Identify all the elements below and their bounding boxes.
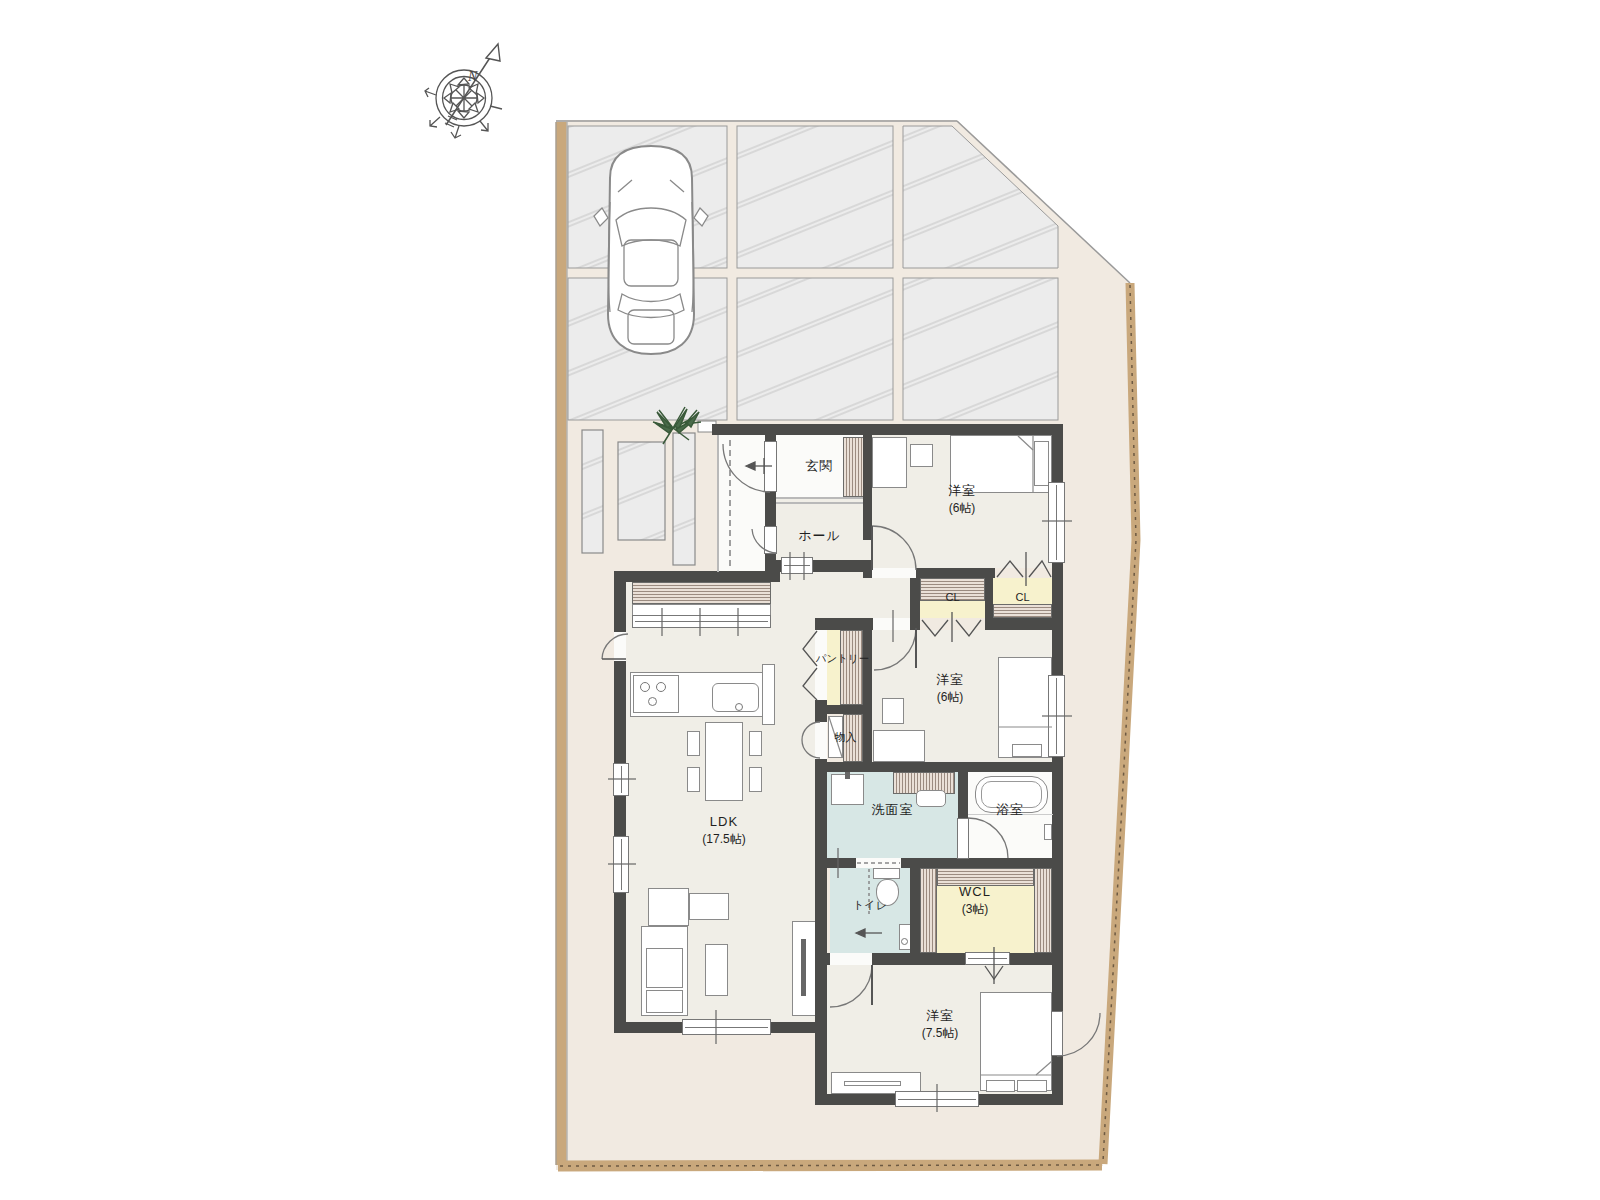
desk-bedroom1 — [872, 437, 907, 488]
ldk-size: (17.5帖) — [702, 832, 745, 846]
bedroom2-name: 洋室 — [936, 672, 964, 687]
bedroom2-window — [1048, 675, 1065, 757]
bedroom2-size: (6帖) — [937, 690, 964, 704]
room-label-genkan: 玄関 — [776, 458, 863, 475]
boundary-bottom — [558, 1165, 1102, 1166]
porch-step-dashed-line — [729, 440, 731, 566]
shower-mixer — [1044, 824, 1052, 840]
burner-2 — [656, 682, 666, 692]
wall-bath-left — [958, 772, 968, 820]
room-label-hall: ホール — [776, 528, 863, 545]
bedroom1-window — [1048, 482, 1065, 563]
chair-4 — [749, 767, 762, 792]
washing-machine-tap — [845, 772, 850, 779]
compass-icon: N — [425, 44, 502, 138]
ldk-name: LDK — [710, 814, 738, 829]
basin-bowl — [901, 938, 908, 945]
pillow-bedroom3-b — [1017, 1080, 1047, 1092]
closet-right-shelf — [993, 604, 1052, 618]
wall-hall-bottom-b — [813, 560, 863, 572]
approach-path — [582, 430, 695, 565]
bedroom3-south-window — [895, 1091, 979, 1107]
wall-wcl-bottom-a — [815, 953, 830, 965]
genkan-step-line2 — [776, 502, 863, 504]
genkan-step-line1 — [776, 497, 863, 499]
room-label-bedroom1: 洋室(6帖) — [912, 483, 1012, 517]
label-closet-right: CL — [993, 590, 1052, 604]
ldk-west-window2 — [613, 836, 629, 893]
room-label-bedroom2: 洋室(6帖) — [900, 672, 1000, 706]
wcl-door-opening — [965, 952, 1010, 965]
wall-closet-top — [916, 568, 995, 578]
bedroom3-exterior-door-leaf — [1051, 1011, 1063, 1056]
tv-bedroom3 — [844, 1081, 901, 1086]
ldk-south-window — [682, 1019, 771, 1035]
chair-1 — [687, 731, 700, 756]
room-label-bathroom: 浴室 — [976, 802, 1044, 819]
hall-opening-floor — [863, 540, 872, 560]
driveway-slabs — [568, 126, 1058, 420]
wall-closet-bottom — [985, 618, 1052, 630]
dining-table — [705, 722, 743, 801]
wall-ldk-top — [614, 571, 780, 582]
room-label-wcl: WCL(3帖) — [925, 884, 1025, 918]
bedroom3-name: 洋室 — [926, 1008, 954, 1023]
wall-wcl-bottom-b — [872, 953, 965, 965]
wcl-size: (3帖) — [962, 902, 989, 916]
wcl-shelf-right — [1034, 868, 1052, 953]
washroom-door-opening — [856, 858, 901, 868]
cooktop — [633, 675, 679, 713]
wall-washroom-bottom — [815, 858, 1063, 868]
bedroom2-door-opening — [873, 618, 910, 630]
porch-edge-line — [717, 435, 719, 572]
room-label-toilet: トイレ — [830, 898, 910, 912]
bedroom1-size: (6帖) — [949, 501, 976, 515]
wcl-name: WCL — [959, 884, 991, 899]
counter-return — [762, 664, 775, 725]
wall-closet-mid — [985, 578, 993, 618]
faucet — [735, 703, 743, 711]
label-pantry: パントリー — [805, 652, 880, 666]
bath-door-leaf — [957, 818, 969, 859]
wall-washroom-top — [815, 762, 1063, 772]
desk-bedroom2 — [873, 730, 925, 762]
wall-corridor-post — [863, 560, 872, 578]
pillow-bedroom3-a — [986, 1080, 1015, 1092]
wall-bedroom2-top-b — [910, 618, 920, 630]
plant-icon — [653, 407, 701, 444]
bed-bedroom2 — [998, 657, 1052, 758]
boundary-right — [1103, 283, 1136, 1164]
bed-bedroom3 — [980, 992, 1052, 1091]
label-storage: 物入 — [818, 730, 873, 744]
porch-floor — [719, 435, 765, 572]
ldk-closet-sliding-door — [632, 615, 771, 628]
chair-2 — [687, 767, 700, 792]
car-icon — [594, 146, 708, 354]
ldk-closet-shelf — [632, 582, 771, 604]
room-label-bedroom3: 洋室(7.5帖) — [890, 1008, 990, 1042]
pillow-bedroom1 — [1034, 441, 1049, 486]
chair-3 — [749, 731, 762, 756]
bedroom1-name: 洋室 — [948, 483, 976, 498]
side-table — [689, 893, 729, 920]
bed-foot-bedroom2 — [1012, 744, 1042, 757]
ldk-west-door-opening — [614, 632, 626, 661]
ottoman — [648, 888, 689, 926]
sofa-seat — [646, 948, 683, 988]
wall-top — [712, 424, 1062, 435]
bedroom1-door-opening — [872, 568, 916, 578]
floor-plan-canvas: 玄関 ホール 洋室(6帖) 洋室(6帖) 洋室(7.5帖) LDK(17.5帖)… — [0, 0, 1600, 1200]
wall-wcl-bottom-c — [1010, 953, 1063, 965]
label-closet-left: CL — [920, 590, 985, 604]
wall-genkan-right — [863, 434, 872, 540]
room-label-washroom: 洗面室 — [835, 802, 950, 819]
wall-toilet-right — [910, 868, 920, 953]
toilet-tank — [873, 868, 900, 879]
corridor-floor — [815, 572, 910, 618]
bedroom3-door-opening — [830, 953, 872, 965]
pantry-shelf — [840, 630, 863, 705]
pantry-floor — [827, 630, 840, 705]
chair-bedroom1 — [910, 444, 933, 467]
compass-north-label: N — [467, 69, 478, 84]
coffee-table — [705, 944, 728, 996]
burner-1 — [640, 682, 650, 692]
tv-ldk — [801, 939, 806, 996]
hall-sliding-door — [781, 557, 813, 574]
wall-pantry-divider — [815, 705, 872, 714]
burner-3 — [648, 697, 657, 706]
ldk-west-window1 — [613, 763, 629, 796]
bedroom3-size: (7.5帖) — [922, 1026, 959, 1040]
room-label-ldk: LDK(17.5帖) — [674, 814, 774, 848]
sofa-seat2 — [646, 990, 683, 1013]
